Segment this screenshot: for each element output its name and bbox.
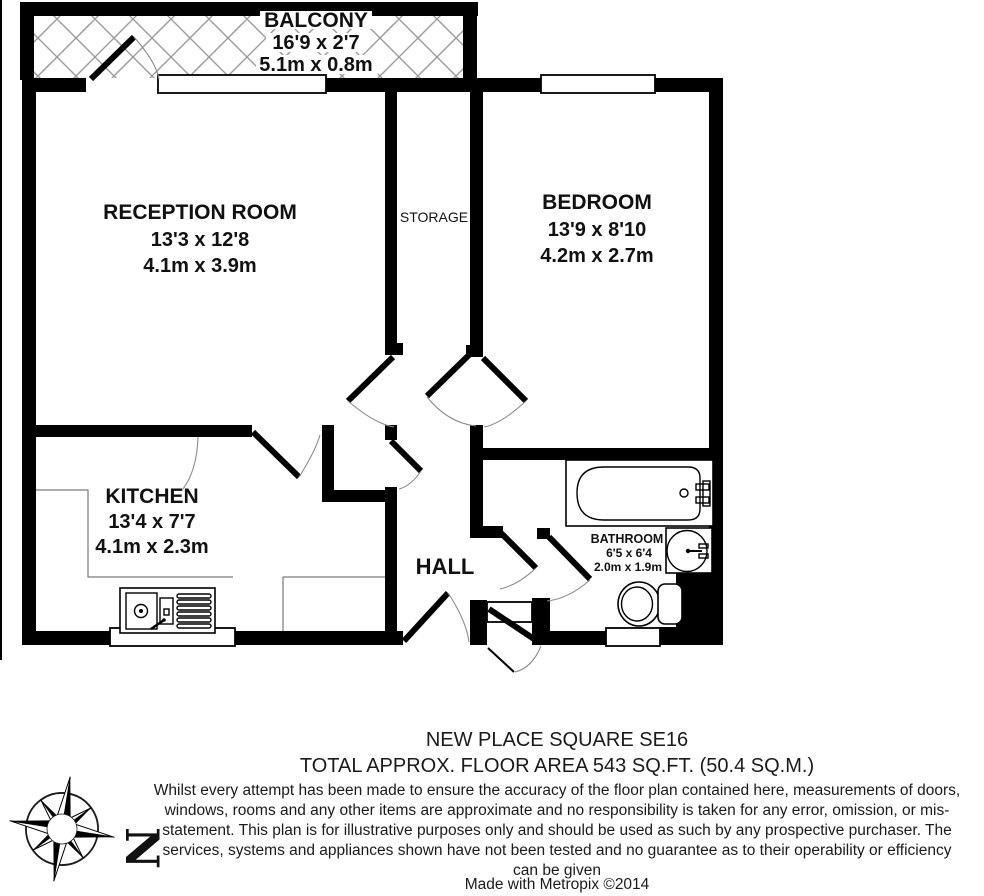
bathroom-dim-imperial: 6'5 x 6'4 — [606, 546, 652, 560]
balcony-dim-metric: 5.1m x 0.8m — [259, 54, 372, 76]
entrance-outer-leaf — [488, 648, 514, 672]
address-line: NEW PLACE SQUARE SE16 — [150, 729, 964, 752]
reception-label: RECEPTION ROOM — [103, 201, 297, 224]
kitchen-dim-imperial: 13'4 x 7'7 — [108, 511, 195, 533]
kitchen-label: KITCHEN — [105, 485, 198, 508]
toilet — [618, 582, 682, 626]
bedroom-window — [541, 75, 655, 93]
bathtub — [566, 460, 713, 526]
bathroom-label: BATHROOM — [591, 532, 664, 546]
wash-basin — [666, 528, 712, 573]
bedroom-door-leaf — [483, 358, 526, 401]
floor-area-line: TOTAL APPROX. FLOOR AREA 543 SQ.FT. (50.… — [150, 755, 964, 778]
kitchen-sink — [120, 588, 215, 633]
balcony-label: BALCONY — [264, 9, 368, 32]
floorplan-page: BALCONY 16'9 x 2'7 5.1m x 0.8m RECEPTION… — [0, 0, 984, 896]
bathroom-door-leaf — [501, 533, 536, 568]
bedroom-label: BEDROOM — [542, 191, 652, 214]
bedroom-dim-metric: 4.2m x 2.7m — [540, 245, 653, 267]
kitchen-door-leaf — [253, 432, 299, 477]
balcony-door-opening — [86, 78, 160, 92]
kitchen-dim-metric: 4.1m x 2.3m — [95, 536, 208, 558]
hall-door-leaf — [427, 354, 470, 396]
reception-dim-imperial: 13'3 x 12'8 — [151, 229, 250, 251]
compass-rose — [1, 768, 122, 889]
bathroom-dim-metric: 2.0m x 1.9m — [594, 560, 662, 574]
reception-door-leaf — [348, 357, 393, 401]
disclaimer-text: Whilst every attempt has been made to en… — [150, 781, 964, 881]
bedroom-dim-imperial: 13'9 x 8'10 — [548, 219, 647, 241]
storage-label: STORAGE — [400, 209, 468, 225]
hall-label: HALL — [416, 554, 475, 579]
balcony-dim-imperial: 16'9 x 2'7 — [272, 32, 359, 54]
bathroom-door-leaf-2 — [549, 537, 590, 579]
reception-dim-metric: 4.1m x 3.9m — [143, 255, 256, 277]
credit-line: Made with Metropix ©2014 — [150, 876, 964, 894]
bathroom-window — [606, 628, 660, 646]
hall-lower-door-leaf — [404, 593, 448, 641]
cupboard-door-leaf — [391, 441, 421, 471]
left-edge-line — [0, 0, 2, 660]
reception-balcony-window — [158, 75, 326, 93]
